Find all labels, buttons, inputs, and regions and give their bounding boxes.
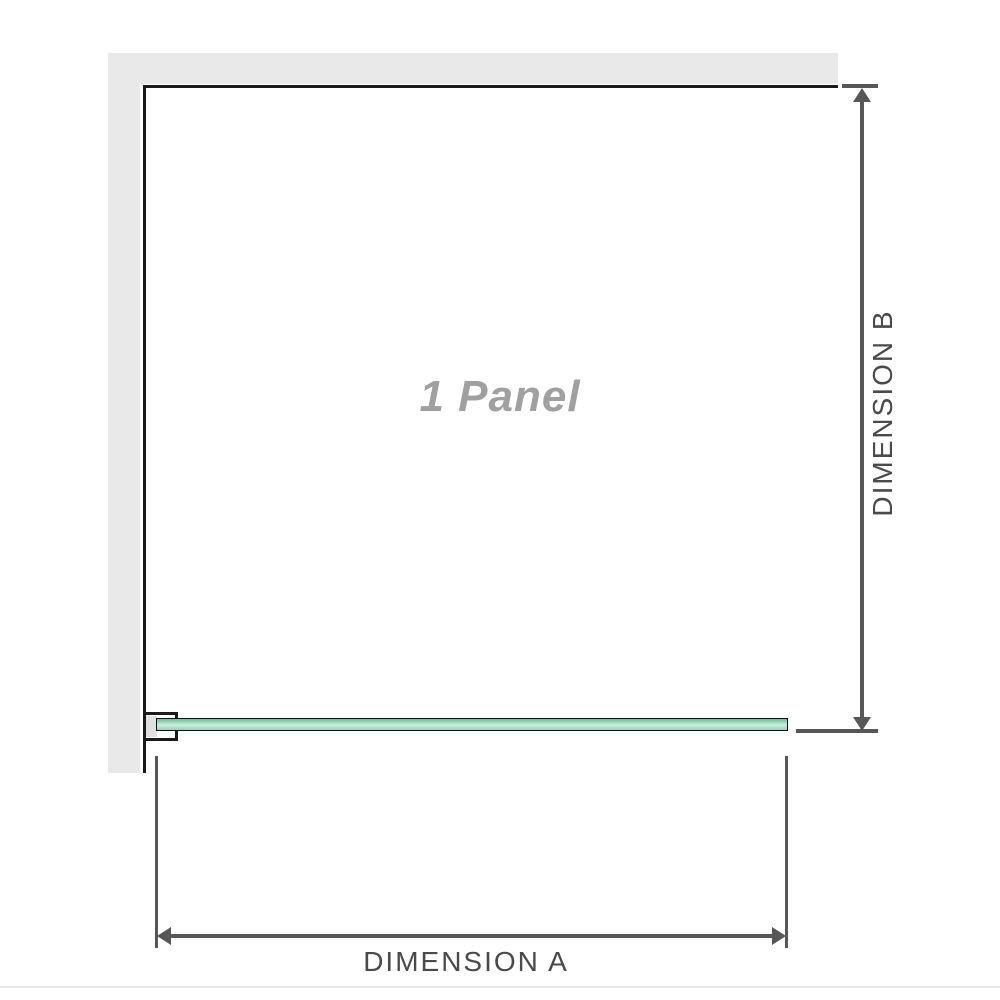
arrow-down-icon <box>853 717 871 731</box>
shower-panel-dimension-diagram: 1 Panel DIMENSION B DIMENSION A <box>0 0 1000 1000</box>
dimension-a-extension-right <box>785 756 788 948</box>
arrow-right-icon <box>772 927 786 945</box>
dimension-a-line <box>168 934 775 938</box>
dimension-a-extension-left <box>155 756 158 948</box>
panel-label: 1 Panel <box>360 372 640 422</box>
dimension-b-line <box>860 99 864 721</box>
baseboard-line <box>0 986 1000 988</box>
glass-panel <box>156 718 788 731</box>
arrow-up-icon <box>853 88 871 102</box>
arrow-left-icon <box>157 927 171 945</box>
dimension-b-label: DIMENSION B <box>867 273 901 553</box>
wall-top-strip <box>108 53 838 84</box>
dimension-a-label: DIMENSION A <box>316 946 616 978</box>
wall-left-strip <box>108 53 140 773</box>
